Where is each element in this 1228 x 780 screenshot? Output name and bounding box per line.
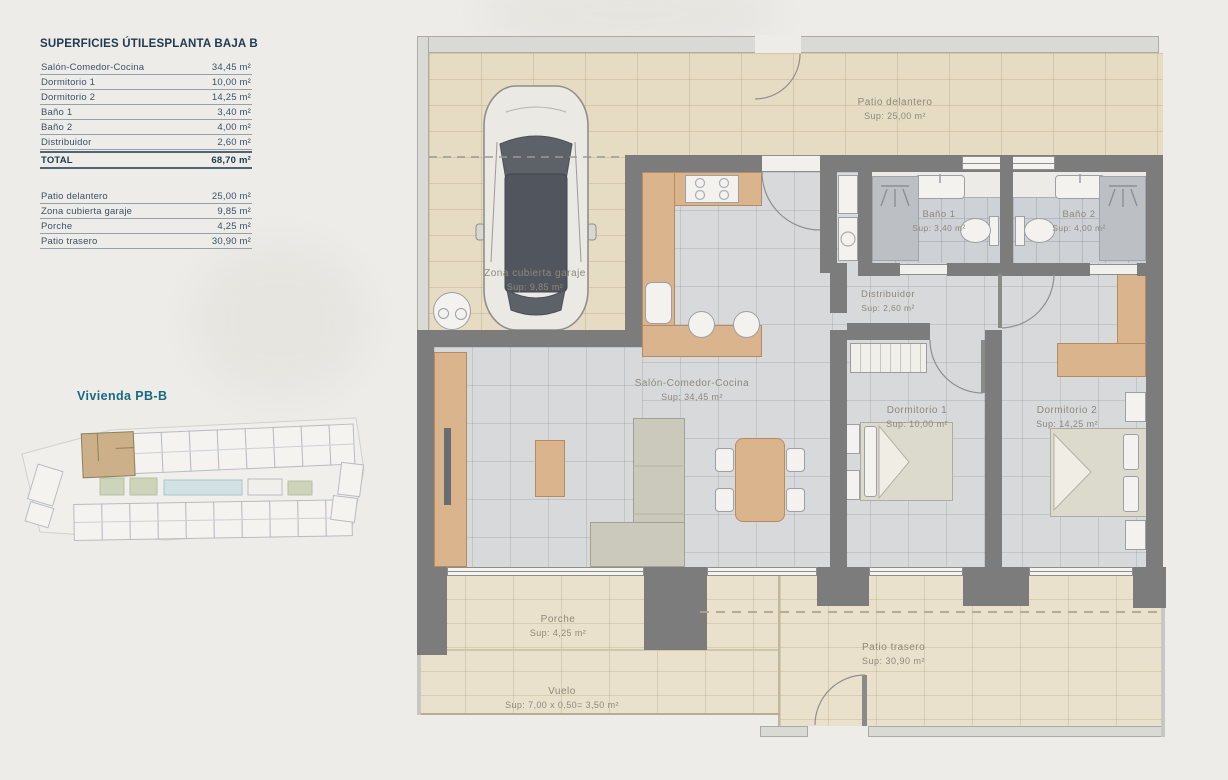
garden-chair <box>455 308 467 320</box>
wall-east <box>1146 155 1163 575</box>
row-value: 10,00 m² <box>212 77 251 88</box>
table-row: Baño 1 3,40 m² <box>40 105 252 120</box>
coffee-table <box>535 440 565 497</box>
row-label: Dormitorio 1 <box>41 77 95 88</box>
table-row: Distribuidor 2,60 m² <box>40 135 252 150</box>
room-area: Sup: 30,90 m² <box>862 655 925 669</box>
wall-dorm1-west <box>830 330 847 575</box>
row-label: Baño 2 <box>41 122 72 133</box>
total-label: TOTAL <box>41 155 73 166</box>
table-row: Zona cubierta garaje 9,85 m² <box>40 204 252 219</box>
rear-sidewalk <box>760 726 808 737</box>
dorm2-nightstand <box>1125 520 1146 550</box>
salon-window <box>707 567 817 576</box>
table-row: Baño 2 4,00 m² <box>40 120 252 135</box>
dining-chair <box>715 448 734 472</box>
bano1-door-threshold <box>900 264 947 275</box>
room-area: Sup: 7,00 x 0,50= 3,50 m² <box>505 699 619 713</box>
table-total-row: TOTAL 68,70 m² <box>40 151 252 169</box>
garden-chair <box>438 308 449 319</box>
dorm1-wardrobe <box>850 343 927 373</box>
dorm2-nightstand <box>1125 392 1146 422</box>
row-value: 3,40 m² <box>217 107 251 118</box>
label-bano1: Baño 1 Sup: 3,40 m² <box>912 208 965 235</box>
dining-chair <box>786 488 805 512</box>
room-name: Porche <box>530 612 586 627</box>
wall-west <box>417 330 434 575</box>
utility-cabinet <box>838 175 858 214</box>
dorm2-pillow <box>1123 434 1139 470</box>
wall-bano-south <box>947 263 1090 276</box>
floor-plan-page: SUPERFICIES ÚTILES PLANTA BAJA B Salón-C… <box>0 0 1228 780</box>
salon-sliding-door <box>447 567 644 576</box>
bano1-sink <box>915 175 965 199</box>
plan-name-title: PLANTA BAJA B <box>164 38 258 50</box>
facade-pillar <box>1133 567 1166 608</box>
patio-fence-left <box>417 655 421 715</box>
bano2-sink <box>1055 175 1105 199</box>
wall-entry-hall <box>820 155 837 273</box>
table-row: Dormitorio 1 10,00 m² <box>40 75 252 90</box>
row-value: 34,45 m² <box>212 62 251 73</box>
room-area: Sup: 3,40 m² <box>912 222 965 235</box>
row-label: Baño 1 <box>41 107 72 118</box>
room-name: Dormitorio 2 <box>1036 403 1098 418</box>
row-label: Zona cubierta garaje <box>41 206 132 217</box>
table-header: SUPERFICIES ÚTILES PLANTA BAJA B <box>40 38 252 50</box>
label-zona-garaje: Zona cubierta garaje Sup: 9,85 m² <box>484 266 586 295</box>
washing-machine <box>838 217 858 261</box>
wall-distribuidor-west <box>830 263 847 313</box>
patio-divider-line <box>778 575 780 726</box>
kitchen-sink <box>645 282 672 324</box>
wall-salon-north <box>417 330 642 347</box>
room-name: Distribuidor <box>861 288 915 302</box>
room-area: Sup: 10,00 m² <box>886 418 948 432</box>
dorm1-pillow <box>864 426 877 497</box>
room-name: Zona cubierta garaje <box>484 266 586 281</box>
room-area: Sup: 4,00 m² <box>1052 222 1105 235</box>
dorm1-window <box>869 567 963 576</box>
front-gate-opening <box>755 35 801 54</box>
rear-sidewalk <box>868 726 1165 737</box>
rear-gate-door-leaf <box>862 675 867 726</box>
total-value: 68,70 m² <box>211 155 251 166</box>
wall-bano1-west <box>858 155 872 273</box>
room-area: Sup: 2,60 m² <box>861 302 915 315</box>
table-row: Porche 4,25 m² <box>40 219 252 234</box>
wall-dorm-divider <box>985 330 1002 575</box>
room-name: Dormitorio 1 <box>886 403 948 418</box>
wall-garage-divider <box>625 155 642 347</box>
car-icon <box>475 82 597 334</box>
areas-table: SUPERFICIES ÚTILES PLANTA BAJA B Salón-C… <box>40 38 252 249</box>
room-area: Sup: 34,45 m² <box>635 391 750 405</box>
dining-chair <box>715 488 734 512</box>
label-patio-delantero: Patio delantero Sup: 25,00 m² <box>858 95 933 124</box>
facade-pillar <box>644 567 707 650</box>
kitchen-hob <box>685 175 739 203</box>
row-value: 4,25 m² <box>217 221 251 232</box>
label-distribuidor: Distribuidor Sup: 2,60 m² <box>861 288 915 315</box>
room-name: Vuelo <box>505 684 619 699</box>
room-name: Baño 2 <box>1052 208 1105 222</box>
row-value: 30,90 m² <box>212 236 251 247</box>
bano2-shower <box>1099 176 1146 261</box>
wall-bano-south <box>1137 263 1163 276</box>
label-patio-trasero: Patio trasero Sup: 30,90 m² <box>862 640 925 669</box>
porch-step-line <box>421 649 778 651</box>
row-label: Porche <box>41 221 72 232</box>
row-label: Patio trasero <box>41 236 97 247</box>
room-name: Patio trasero <box>862 640 925 655</box>
row-value: 4,00 m² <box>217 122 251 133</box>
facade-pillar <box>417 567 447 655</box>
dorm2-window <box>1029 567 1133 576</box>
dorm2-wardrobe <box>1057 343 1146 377</box>
row-label: Distribuidor <box>41 137 91 148</box>
sofa-chaise <box>590 522 685 567</box>
row-label: Dormitorio 2 <box>41 92 95 103</box>
bar-stool <box>688 311 715 338</box>
bar-stool <box>733 311 760 338</box>
row-value: 2,60 m² <box>217 137 251 148</box>
row-label: Salón-Comedor-Cocina <box>41 62 144 73</box>
label-dorm1: Dormitorio 1 Sup: 10,00 m² <box>886 403 948 432</box>
wall-dorm-divider <box>985 263 1002 272</box>
table-row: Patio trasero 30,90 m² <box>40 234 252 249</box>
table-title: SUPERFICIES ÚTILES <box>40 38 164 50</box>
dining-table <box>735 438 785 522</box>
dorm1-nightstand <box>845 424 860 454</box>
row-label: Patio delantero <box>41 191 108 202</box>
vuelo-boundary-line <box>417 713 780 715</box>
room-area: Sup: 14,25 m² <box>1036 418 1098 432</box>
table-row: Patio delantero 25,00 m² <box>40 189 252 204</box>
side-boundary-wall <box>417 36 429 331</box>
room-name: Baño 1 <box>912 208 965 222</box>
label-porche: Porche Sup: 4,25 m² <box>530 612 586 641</box>
room-name: Patio delantero <box>858 95 933 110</box>
floor-plan-drawing: Patio delantero Sup: 25,00 m² Zona cubie… <box>417 36 1168 745</box>
label-vuelo: Vuelo Sup: 7,00 x 0,50= 3,50 m² <box>505 684 619 713</box>
wall-north <box>625 155 1163 172</box>
wall-bano-divider <box>1000 155 1013 273</box>
bano2-toilet <box>1024 218 1055 243</box>
label-salon: Salón-Comedor-Cocina Sup: 34,45 m² <box>635 376 750 405</box>
entry-door-threshold <box>762 155 820 172</box>
facade-pillar <box>963 567 1029 606</box>
row-value: 9,85 m² <box>217 206 251 217</box>
dorm2-pillow <box>1123 476 1139 512</box>
facade-pillar <box>817 567 869 606</box>
room-name: Salón-Comedor-Cocina <box>635 376 750 391</box>
bano2-door-threshold <box>1090 264 1137 275</box>
dorm2-door-leaf <box>998 274 1002 328</box>
unit-locator-label: Vivienda PB-B <box>77 389 167 403</box>
dorm1-nightstand <box>845 470 860 500</box>
table-row: Dormitorio 2 14,25 m² <box>40 90 252 105</box>
wall-dorm1-north <box>847 323 930 340</box>
watermark-blob <box>190 240 370 400</box>
label-bano2: Baño 2 Sup: 4,00 m² <box>1052 208 1105 235</box>
tv-screen <box>444 428 451 505</box>
room-area: Sup: 4,25 m² <box>530 627 586 641</box>
row-value: 25,00 m² <box>212 191 251 202</box>
site-key-plan <box>16 408 368 553</box>
room-area: Sup: 9,85 m² <box>484 281 586 295</box>
label-dorm2: Dormitorio 2 Sup: 14,25 m² <box>1036 403 1098 432</box>
room-area: Sup: 25,00 m² <box>858 110 933 124</box>
site-key-plan-drawing <box>16 408 368 548</box>
wall-bano-south <box>858 263 900 276</box>
row-value: 14,25 m² <box>212 92 251 103</box>
dining-chair <box>786 448 805 472</box>
table-row: Salón-Comedor-Cocina 34,45 m² <box>40 60 252 75</box>
